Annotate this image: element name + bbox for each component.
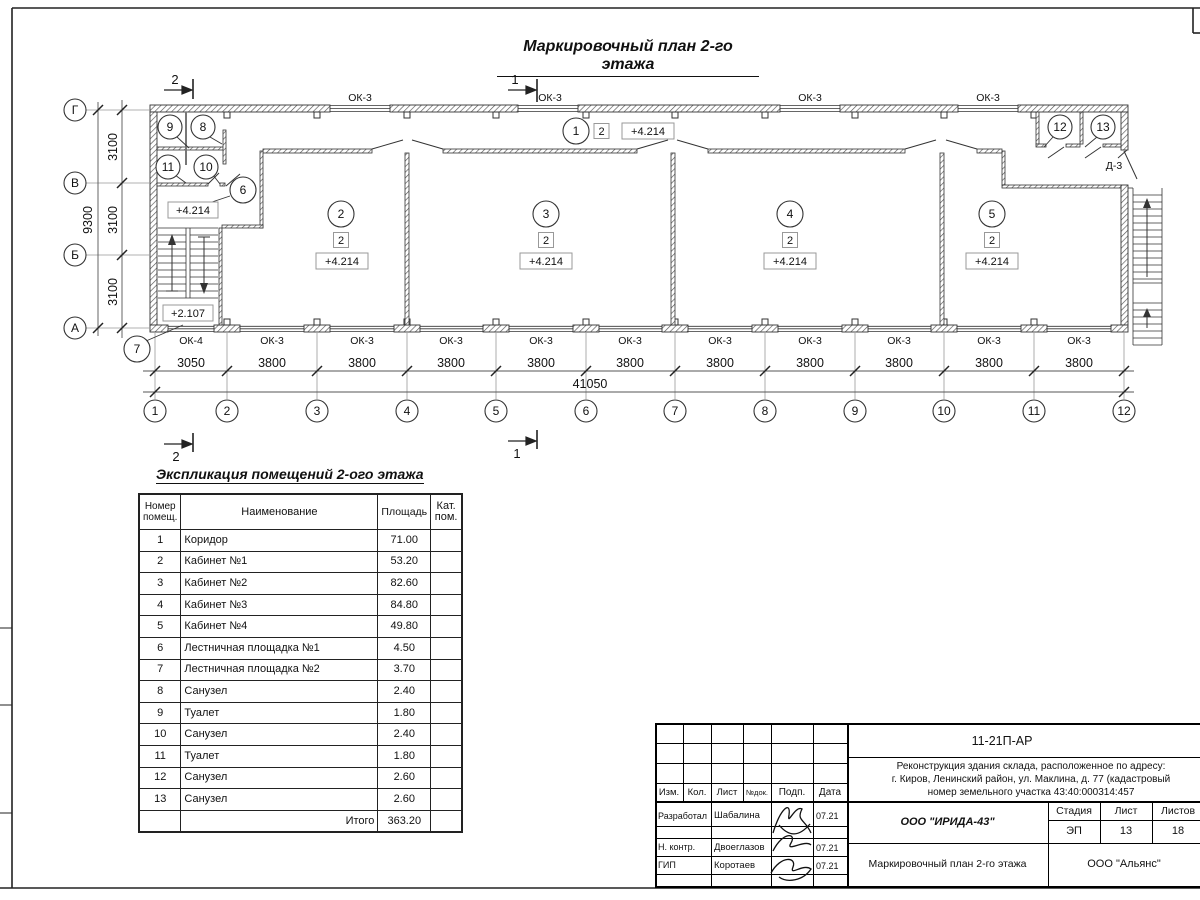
badge-value: 2 — [989, 235, 995, 247]
stage-value: ЭП — [1048, 820, 1100, 843]
thin-partition — [185, 112, 187, 165]
explication-table: Экспликация помещений 2-ого этажа Номер … — [138, 466, 463, 833]
project-description-line: Реконструкция здания склада, расположенн… — [847, 760, 1200, 773]
table-total-row: Итого363.20 — [139, 810, 462, 832]
col-header-num: Номер помещ. — [139, 494, 181, 530]
col-header-name: Наименование — [181, 494, 378, 530]
room-number: 9 — [167, 120, 174, 134]
table-row: 3Кабинет №282.60 — [139, 573, 462, 595]
table-row: 7Лестничная площадка №23.70 — [139, 659, 462, 681]
elevation-value: +2.107 — [171, 308, 205, 320]
dim-total: 41050 — [573, 377, 608, 391]
role-date: 07.21 — [816, 811, 839, 822]
col-list: Лист — [711, 783, 743, 801]
title-block: Изм. Кол. Лист №док. Подп. Дата Разработ… — [655, 723, 1200, 888]
dim-bay: 3800 — [616, 356, 644, 370]
role-label: Разработал — [658, 811, 707, 822]
drawing-sheet: { "plan": { "title": "Маркировочный план… — [0, 0, 1200, 900]
axis-letter: Б — [71, 248, 79, 262]
elevation-value: +4.214 — [325, 256, 359, 268]
dim-left: 3100 — [106, 278, 120, 306]
window-label: ОК-3 — [350, 335, 374, 347]
leader-lines — [146, 137, 1127, 341]
badge-value: 2 — [338, 235, 344, 247]
table-row: 9Туалет1.80 — [139, 702, 462, 724]
role-name: Шабалина — [714, 810, 760, 821]
elevation-value: +4.214 — [176, 205, 210, 217]
role-label: Н. контр. — [658, 842, 695, 853]
room-number: 11 — [162, 160, 175, 174]
dim-bay: 3800 — [796, 356, 824, 370]
dim-left: 3100 — [106, 133, 120, 161]
badge-value: 2 — [543, 235, 549, 247]
window-label: ОК-3 — [618, 335, 642, 347]
axis-letter: Г — [72, 103, 79, 117]
interior-walls — [157, 112, 1121, 325]
window-label: ОК-3 — [439, 335, 463, 347]
section-number: 2 — [172, 449, 179, 464]
dim-bay: 3800 — [975, 356, 1003, 370]
room-number: 12 — [1053, 120, 1067, 134]
dim-bay: 3800 — [527, 356, 555, 370]
window-label: ОК-3 — [708, 335, 732, 347]
elevation-value: +4.214 — [773, 256, 807, 268]
room-number: 3 — [543, 207, 550, 221]
axis-bubbles-bottom — [144, 400, 1135, 422]
sheet-title: Маркировочный план 2-го этажа — [847, 843, 1048, 886]
page-title: Маркировочный план 2-го этажа — [497, 38, 759, 77]
axis-number: 9 — [852, 404, 859, 418]
designer-company: ООО "ИРИДА-43" — [847, 801, 1048, 843]
internal-stairs — [158, 228, 218, 298]
badge-value: 2 — [598, 126, 604, 138]
stair-arrow-up — [168, 234, 176, 245]
axis-number: 5 — [493, 404, 500, 418]
sheet-value: 13 — [1100, 820, 1152, 843]
table-row: 1Коридор71.00 — [139, 530, 462, 552]
window-label: ОК-3 — [798, 92, 822, 104]
project-description-line: г. Киров, Ленинский район, ул. Маклина, … — [847, 773, 1200, 786]
sheets-value: 18 — [1152, 820, 1200, 843]
ext-stair-arrow-up2 — [1143, 308, 1151, 317]
table-row: 13Санузел2.60 — [139, 789, 462, 811]
table-row: 2Кабинет №153.20 — [139, 551, 462, 573]
room-number: 5 — [989, 207, 996, 221]
role-date: 07.21 — [816, 861, 839, 872]
table-row: 6Лестничная площадка №14.50 — [139, 637, 462, 659]
window-label: ОК-3 — [538, 92, 562, 104]
customer-org: ООО "Альянс" — [1048, 843, 1200, 886]
window-label: ОК-3 — [1067, 335, 1091, 347]
table-row: 5Кабинет №449.80 — [139, 616, 462, 638]
window-label: ОК-3 — [348, 92, 372, 104]
stage-label: Стадия — [1048, 802, 1100, 820]
col-kol: Кол. — [683, 783, 711, 801]
door-label: Д-3 — [1106, 160, 1123, 172]
room-number: 7 — [134, 342, 141, 356]
dim-bay: 3800 — [258, 356, 286, 370]
signature — [767, 829, 817, 885]
axis-number: 2 — [224, 404, 231, 418]
dim-bay: 3800 — [706, 356, 734, 370]
dimension-lines — [98, 100, 1134, 392]
window-label: ОК-3 — [798, 335, 822, 347]
col-header-cat: Кат. пом. — [431, 494, 463, 530]
category-badges — [334, 124, 1000, 248]
window-label: ОК-3 — [529, 335, 553, 347]
doc-number: 11-21П-АР — [847, 727, 1157, 755]
axis-number: 12 — [1117, 404, 1131, 418]
window-label: ОК-3 — [887, 335, 911, 347]
axis-number: 3 — [314, 404, 321, 418]
elevation-value: +4.214 — [529, 256, 563, 268]
room-number: 2 — [338, 207, 345, 221]
col-header-area: Площадь — [378, 494, 431, 530]
window-label: ОК-3 — [976, 92, 1000, 104]
dim-left-total: 9300 — [81, 206, 95, 234]
window-label: ОК-4 — [179, 335, 203, 347]
table-row: 8Санузел2.40 — [139, 681, 462, 703]
project-description-line: номер земельного участка 43:40:000314:45… — [847, 786, 1200, 799]
room-number: 8 — [200, 120, 207, 134]
axis-letter: В — [71, 176, 79, 190]
section-number: 2 — [171, 72, 178, 87]
axis-number: 11 — [1028, 404, 1041, 418]
window-label: ОК-3 — [260, 335, 284, 347]
dim-bay: 3800 — [437, 356, 465, 370]
role-label: ГИП — [658, 860, 676, 871]
axis-number: 10 — [937, 404, 951, 418]
dim-bay: 3800 — [885, 356, 913, 370]
role-date: 07.21 — [816, 843, 839, 854]
axis-number: 8 — [762, 404, 769, 418]
dim-bay: 3800 — [1065, 356, 1093, 370]
table-row: 12Санузел2.60 — [139, 767, 462, 789]
ext-stair-arrow-up — [1143, 198, 1151, 208]
axis-number: 7 — [672, 404, 679, 418]
table-row: 10Санузел2.40 — [139, 724, 462, 746]
elevation-value: +4.214 — [631, 126, 665, 138]
axis-number: 6 — [583, 404, 590, 418]
elevation-value: +4.214 — [975, 256, 1009, 268]
room-number: 13 — [1096, 120, 1110, 134]
col-izm: Изм. — [655, 783, 683, 801]
room-number: 10 — [199, 160, 213, 174]
axis-number: 1 — [152, 404, 159, 418]
dim-bay: 3800 — [348, 356, 376, 370]
room-number: 4 — [787, 207, 794, 221]
table-row: 11Туалет1.80 — [139, 745, 462, 767]
window-label: ОК-3 — [977, 335, 1001, 347]
axis-number: 4 — [404, 404, 411, 418]
room-number: 1 — [573, 124, 580, 138]
role-name: Двоеглазов — [714, 842, 765, 853]
dim-left: 3100 — [106, 206, 120, 234]
sheets-label: Листов — [1152, 802, 1200, 820]
table-header-row: Номер помещ. Наименование Площадь Кат. п… — [139, 494, 462, 530]
col-data: Дата — [813, 783, 847, 801]
explication-title: Экспликация помещений 2-ого этажа — [156, 466, 424, 484]
role-name: Коротаев — [714, 860, 755, 871]
stair-arrow-down — [200, 283, 208, 294]
room-number: 6 — [240, 183, 247, 197]
section-number: 1 — [513, 446, 520, 461]
badge-value: 2 — [787, 235, 793, 247]
external-stairs — [1128, 188, 1162, 345]
dim-bay: 3050 — [177, 356, 205, 370]
sheet-label: Лист — [1100, 802, 1152, 820]
table-row: 4Кабинет №384.80 — [139, 594, 462, 616]
col-docnum: №док. — [743, 783, 771, 801]
axis-letter: А — [71, 321, 79, 335]
